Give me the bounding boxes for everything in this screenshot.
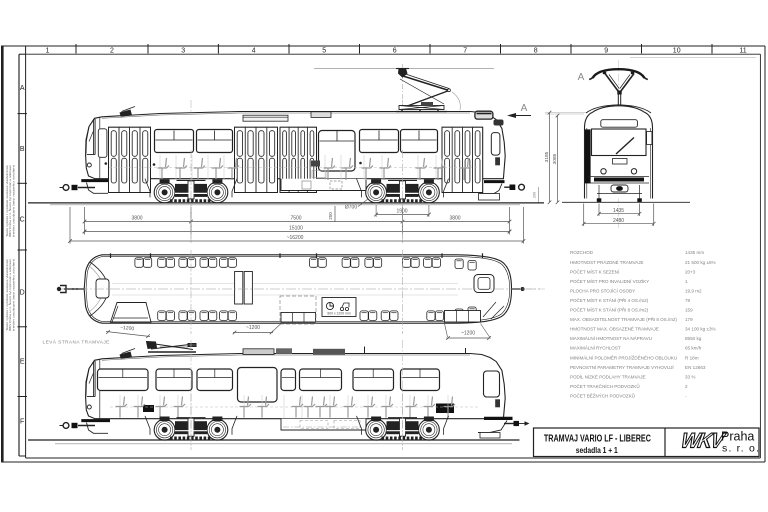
svg-text:1900: 1900 bbox=[396, 209, 407, 215]
svg-text:3: 3 bbox=[181, 48, 185, 55]
svg-text:1: 1 bbox=[46, 48, 50, 55]
svg-text:A: A bbox=[578, 72, 585, 83]
svg-text:tretim osobam bez naseho svole: tretim osobam bez naseho svoleni bbox=[11, 258, 15, 331]
svg-text:3085: 3085 bbox=[552, 153, 558, 164]
svg-text:Praha: Praha bbox=[721, 430, 754, 444]
svg-text:ROZCHOD: ROZCHOD bbox=[570, 250, 594, 255]
svg-text:POČET MÍST PRO INVALIDNÍ VOZÍK: POČET MÍST PRO INVALIDNÍ VOZÍKY bbox=[570, 278, 649, 284]
svg-text:~1200: ~1200 bbox=[246, 325, 260, 331]
svg-text:3185: 3185 bbox=[544, 151, 550, 162]
svg-text:179: 179 bbox=[685, 317, 693, 322]
svg-text:POČET TRAKČNÍCH PODVOZKŮ: POČET TRAKČNÍCH PODVOZKŮ bbox=[570, 383, 640, 389]
svg-text:LEVÁ STRANA TRAMVAJE: LEVÁ STRANA TRAMVAJE bbox=[43, 339, 110, 346]
svg-text:2: 2 bbox=[685, 384, 688, 389]
svg-text:PEVNOSTNÍ PARAMETRY TRAMVAJE V: PEVNOSTNÍ PARAMETRY TRAMVAJE VYHOVUJÍ bbox=[570, 364, 674, 370]
svg-text:6: 6 bbox=[393, 48, 397, 55]
svg-text:MAXIMÁLNÍ HMOTNOST NA NÁPRAVU: MAXIMÁLNÍ HMOTNOST NA NÁPRAVU bbox=[570, 335, 652, 341]
svg-text:34 100 kg ±3%: 34 100 kg ±3% bbox=[685, 327, 716, 332]
svg-text:33 %: 33 % bbox=[685, 374, 695, 379]
svg-text:TRAMVAJ VARIO LF - LIBEREC: TRAMVAJ VARIO LF - LIBEREC bbox=[544, 434, 651, 445]
svg-text:11: 11 bbox=[739, 48, 746, 55]
svg-text:sedadla 1 + 1: sedadla 1 + 1 bbox=[576, 445, 618, 455]
svg-text:3800: 3800 bbox=[449, 216, 460, 222]
svg-text:E: E bbox=[20, 358, 25, 365]
svg-text:EN 12663: EN 12663 bbox=[685, 365, 706, 370]
svg-text:5: 5 bbox=[322, 48, 326, 55]
svg-text:200: 200 bbox=[533, 192, 537, 198]
svg-text:Ø700: Ø700 bbox=[345, 205, 357, 211]
svg-text:65 km/h: 65 km/h bbox=[685, 346, 702, 351]
svg-text:R 18m: R 18m bbox=[685, 355, 699, 360]
svg-text:2480: 2480 bbox=[613, 218, 624, 224]
svg-text:~16200: ~16200 bbox=[287, 235, 304, 241]
svg-text:MAXIMÁLNÍ RYCHLOST: MAXIMÁLNÍ RYCHLOST bbox=[570, 345, 621, 351]
svg-text:F: F bbox=[20, 419, 24, 426]
svg-text:PODÍL NÍZKÉ PODLAHY TRAMVAJE: PODÍL NÍZKÉ PODLAHY TRAMVAJE bbox=[570, 373, 646, 379]
svg-text:tretim osobam bez naseho svole: tretim osobam bez naseho svoleni bbox=[11, 164, 15, 237]
svg-text:21 500 kg ±5%: 21 500 kg ±5% bbox=[685, 260, 716, 265]
svg-text:~1200: ~1200 bbox=[461, 331, 475, 337]
svg-text:159: 159 bbox=[685, 308, 693, 313]
svg-text:POČET BĚŽNÝCH PODVOZKŮ: POČET BĚŽNÝCH PODVOZKŮ bbox=[570, 391, 635, 398]
svg-text:250: 250 bbox=[328, 212, 333, 220]
svg-text:MINIMÁLNÍ POLOMĚR PROJÍŽDĚNÉHO: MINIMÁLNÍ POLOMĚR PROJÍŽDĚNÉHO OBLOUKU bbox=[570, 353, 677, 360]
svg-text:POČET MÍST K SEZENÍ: POČET MÍST K SEZENÍ bbox=[570, 268, 620, 274]
svg-text:PLOCHA PRO STOJÍCÍ OSOBY: PLOCHA PRO STOJÍCÍ OSOBY bbox=[570, 287, 635, 293]
svg-text:s. r. o.: s. r. o. bbox=[722, 443, 760, 455]
svg-text:4: 4 bbox=[252, 48, 256, 55]
svg-text:8: 8 bbox=[534, 48, 538, 55]
svg-text:1435 mm: 1435 mm bbox=[685, 250, 704, 255]
svg-text:HMOTNOST MAX. OBSAZENÉ TRAMVAJ: HMOTNOST MAX. OBSAZENÉ TRAMVAJE bbox=[570, 326, 659, 332]
svg-text:15100: 15100 bbox=[289, 226, 303, 232]
svg-text:3800: 3800 bbox=[131, 216, 142, 222]
svg-text:10: 10 bbox=[673, 48, 681, 55]
svg-text:800 x 1200 mm: 800 x 1200 mm bbox=[327, 312, 351, 316]
svg-text:1: 1 bbox=[685, 279, 688, 284]
svg-text:7500: 7500 bbox=[290, 216, 301, 222]
svg-text:POČET MÍST K STÁNÍ (PŘI 8 OS./: POČET MÍST K STÁNÍ (PŘI 8 OS./m2) bbox=[570, 306, 649, 313]
svg-text:C: C bbox=[20, 217, 25, 224]
svg-text:D: D bbox=[20, 289, 25, 296]
svg-text:20+3: 20+3 bbox=[685, 269, 696, 274]
svg-text:19,9 m2: 19,9 m2 bbox=[685, 288, 702, 293]
svg-text:7: 7 bbox=[463, 48, 467, 55]
svg-text:9: 9 bbox=[604, 48, 608, 55]
svg-text:A: A bbox=[20, 85, 25, 92]
svg-text:2: 2 bbox=[110, 48, 114, 55]
svg-text:POČET MÍST K STÁNÍ (PŘI 4 OS./: POČET MÍST K STÁNÍ (PŘI 4 OS./m2) bbox=[570, 296, 649, 303]
svg-text:1435: 1435 bbox=[613, 208, 624, 214]
svg-text:HMOTNOST PRÁZDNÉ TRAMVAJE: HMOTNOST PRÁZDNÉ TRAMVAJE bbox=[570, 259, 644, 265]
svg-text:8550 kg: 8550 kg bbox=[685, 336, 702, 341]
svg-text:A: A bbox=[521, 103, 528, 114]
svg-text:MAX. OBSADITELNOST TRAMVAJE (P: MAX. OBSADITELNOST TRAMVAJE (PŘI 8 OS./m… bbox=[570, 315, 677, 322]
svg-text:B: B bbox=[20, 146, 25, 153]
svg-text:79: 79 bbox=[685, 298, 691, 303]
